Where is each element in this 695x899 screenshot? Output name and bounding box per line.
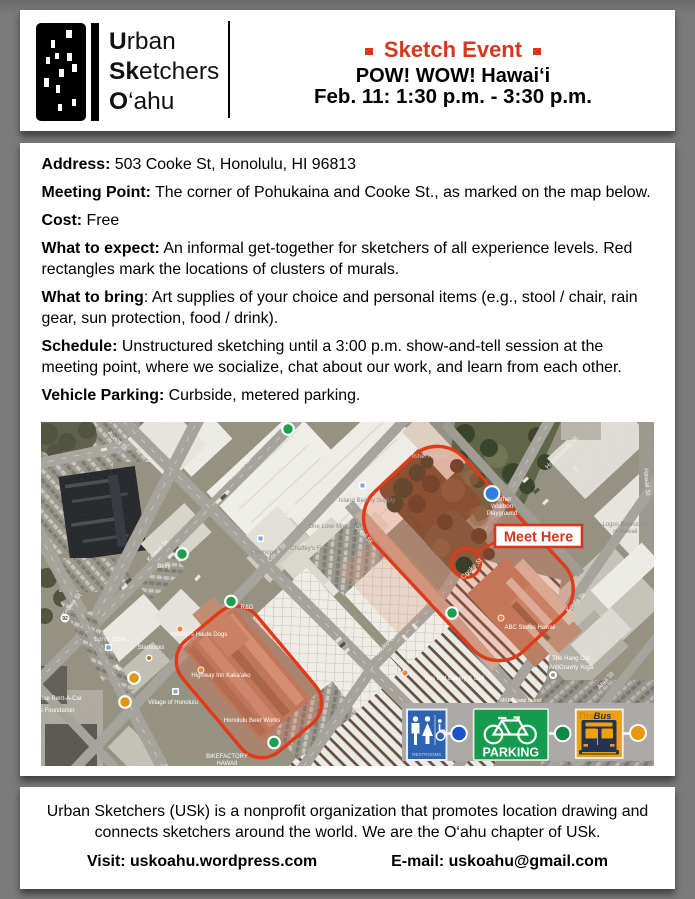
svg-text:Playground: Playground xyxy=(487,511,517,517)
svg-text:fisher Hawaii: fisher Hawaii xyxy=(412,454,446,460)
svg-text:PARKING: PARKING xyxy=(482,746,539,760)
svg-text:Village of Honolulu: Village of Honolulu xyxy=(148,700,198,706)
svg-text:HAWAII: HAWAII xyxy=(217,761,238,766)
svg-text:Starbucks: Starbucks xyxy=(138,645,165,651)
svg-text:of Hawaii: of Hawaii xyxy=(613,529,638,535)
svg-text:Sprint Store: Sprint Store xyxy=(94,637,126,643)
svg-text:R&D: R&D xyxy=(241,605,254,611)
svg-text:One Love Ministries: One Love Ministries xyxy=(308,524,361,530)
svg-text:This Is It Bakery & Deli: This Is It Bakery & Deli xyxy=(424,676,485,682)
svg-text:RESTROOMS: RESTROOMS xyxy=(412,752,441,757)
svg-text:BIKEFACTORY: BIKEFACTORY xyxy=(206,754,248,760)
svg-text:Cosmopol: Cosmopol xyxy=(250,550,277,556)
svg-text:e Foundation: e Foundation xyxy=(41,708,75,714)
svg-text:AntiGravity Yoga: AntiGravity Yoga xyxy=(549,665,594,671)
svg-text:ABC Stores Hawaii: ABC Stores Hawaii xyxy=(504,625,555,631)
svg-text:Meet Here: Meet Here xyxy=(504,530,573,546)
svg-text:Logos Bookstore: Logos Bookstore xyxy=(602,522,648,528)
svg-text:Honolulu Beer Works: Honolulu Beer Works xyxy=(224,718,281,724)
svg-text:Highway Inn Kaka'ako: Highway Inn Kaka'ako xyxy=(191,673,251,679)
svg-text:rise Rent-A-Car: rise Rent-A-Car xyxy=(41,696,82,702)
svg-text:Bevy: Bevy xyxy=(157,564,170,570)
svg-text:Island Beauty Supply: Island Beauty Supply xyxy=(339,498,395,504)
svg-text:The Hang Out: The Hang Out xyxy=(552,656,590,662)
svg-text:Waldron: Waldron xyxy=(491,504,513,510)
svg-text:Chaffey's Fishing Supply: Chaffey's Fishing Supply xyxy=(290,546,356,552)
svg-text:Hawai'i's Haute Dogs: Hawai'i's Haute Dogs xyxy=(171,632,228,638)
